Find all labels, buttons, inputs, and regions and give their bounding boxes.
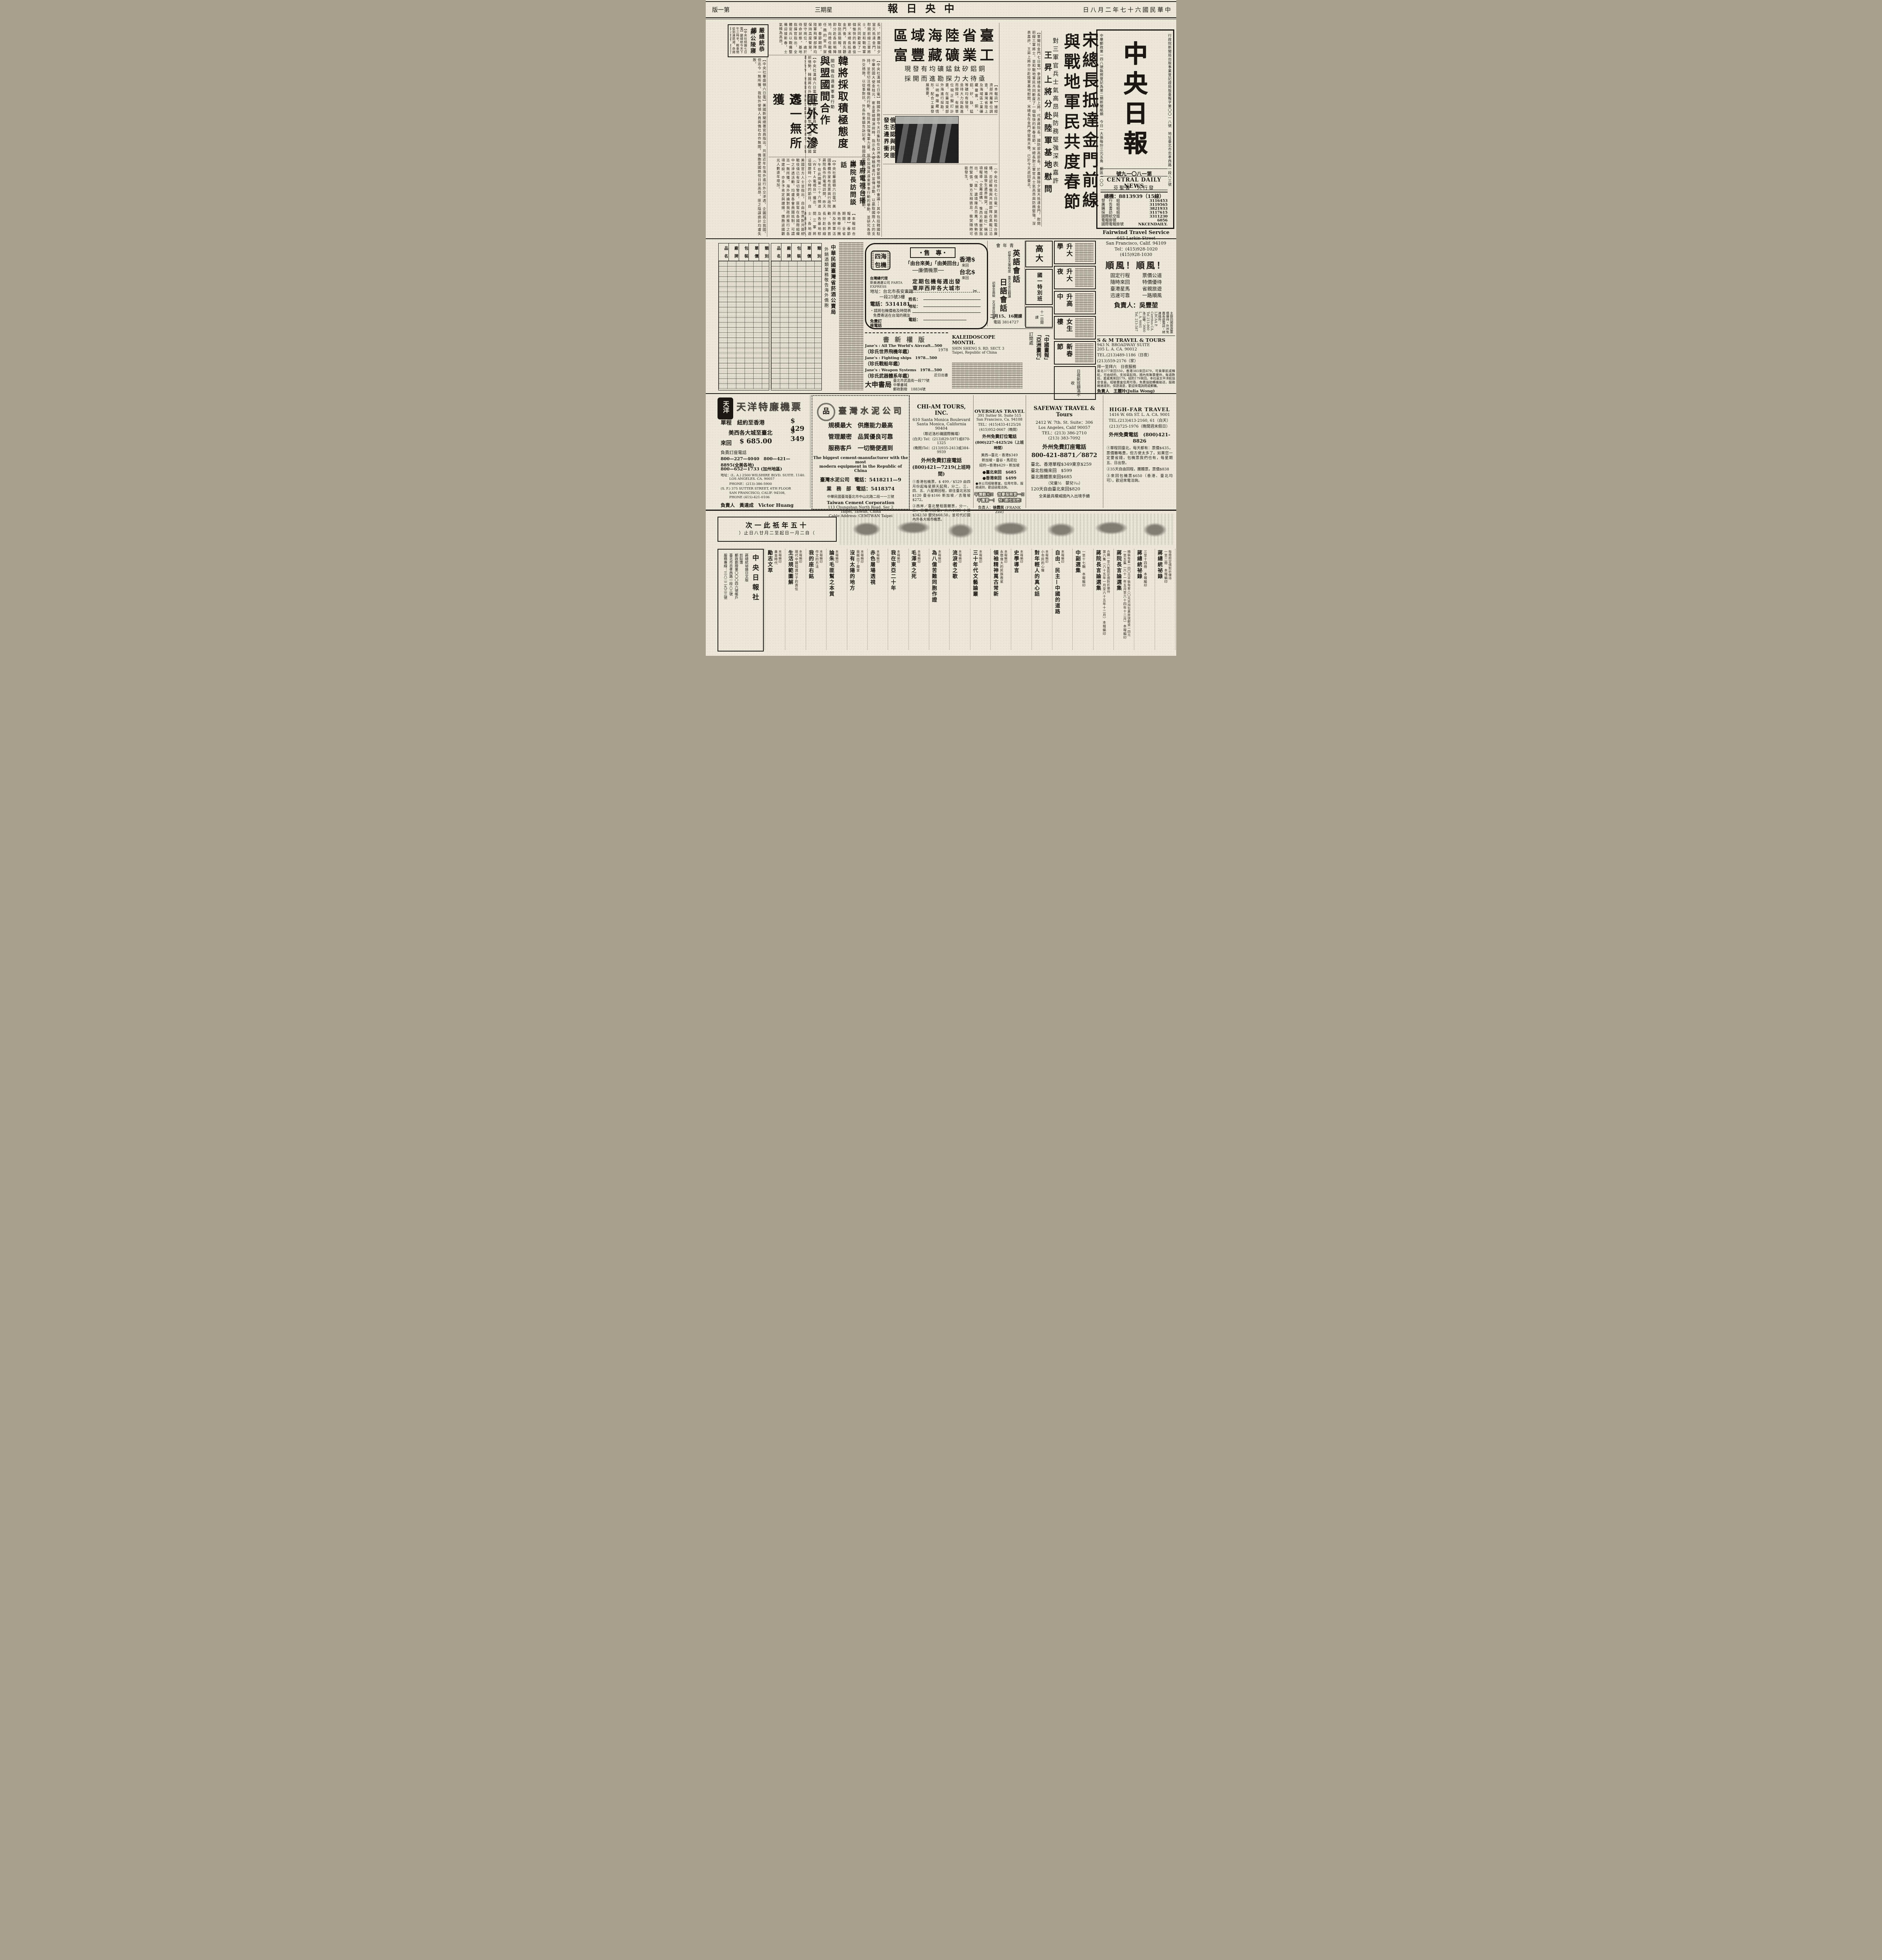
overseas-manager: 徐霖民: [993, 506, 1004, 510]
coupon-tel-field[interactable]: [923, 320, 966, 320]
phone-value: NKCENDAILY.: [1138, 223, 1168, 227]
overseas-tollfree-label: 外州免費訂位電話: [974, 433, 1025, 439]
highfar-tel-1: TEL.(213)413-2160, 61（白天）: [1104, 417, 1175, 423]
book-item: 蔣院長言論選集一至五集（六十一年五月至六十四年十二月）本報編印精裝每套一四〇元平…: [1114, 549, 1134, 650]
cement-zh-addr: 中華民國臺灣臺北市中山北路二段一一三號: [812, 494, 909, 499]
ad-separator: [1026, 395, 1026, 508]
body-seoul: 【中央社漢城七日電】韓國外務部今天召集駐在亞洲各地的使節領袖舉行會議──其中包括…: [857, 59, 880, 236]
classified-fine-print: [1075, 318, 1094, 337]
fairwind-tel-2: (415)928-1030: [1097, 252, 1175, 257]
overseas-fare-5: ●香港來回 $499: [974, 475, 1025, 481]
tianyang-phone-la: PHONE：(213)-386-5900: [729, 481, 772, 486]
classified-fine-print: [1075, 293, 1094, 312]
fairwind-features: 固定行程票價公道 隨時來回特價優待 臺港星馬省親旅遊 迅速可靠一路順風: [1097, 272, 1175, 299]
classified-text: 升大夜: [1055, 268, 1074, 287]
charter-stamp: 四海包機: [871, 250, 890, 270]
book-note: 每冊照定價對折優待: [1168, 550, 1172, 649]
misc-line-2: 「亞洲畫刊」: [1034, 332, 1042, 387]
safeway-tollfree-label: 外州免費訂座電話: [1027, 443, 1102, 451]
sale-note-line-2: ）止日八廿月二至起日一月二自（: [718, 530, 836, 536]
book-title: 毛澤東之死: [910, 550, 917, 649]
overseas-slogan-2: 平價第一! 快!請找我們!: [974, 497, 1025, 503]
book-title: 蔣總統祕錄: [1156, 550, 1163, 649]
book-subtitle: 永懷偉大的民族救星: [999, 550, 1004, 649]
book-note: 本報編印: [876, 550, 880, 649]
safeway-tel-1: TEL：(213) 386-2710: [1027, 430, 1102, 436]
overseas-manager-label: 負責人：: [978, 506, 993, 510]
bookstore-addr: 臺北市武昌街一段77號 中華書城 郵政劃撥 18834號: [893, 379, 929, 392]
misc-line-1: 「中國畫報」: [1042, 332, 1050, 387]
fairwind-addr-1: 645 Larkin Street: [1097, 236, 1175, 241]
book-title: 勵志文萃: [766, 550, 773, 649]
book-item: 為八億苦難同胞作證本報編印: [929, 549, 950, 650]
tianyang-booking-label: 負責訂座電話: [721, 449, 747, 456]
janes-item-2-en: Jane's : Fighting ships 1978…500: [865, 355, 948, 360]
overseas-manager-row: 負責人：徐霖民 (FRANK Zee): [974, 505, 1025, 514]
sm-addr-2: 205 L. A. CA. 90012: [1097, 347, 1175, 352]
photo-troop-inspection: [895, 116, 959, 163]
misc-line-3: 訂閱處: [1028, 332, 1034, 387]
coupon-addr-field[interactable]: [923, 307, 981, 307]
bookstore-addr-1: 臺北市武昌街一段77號: [893, 379, 929, 383]
chiam-tel-day: (白天) Tel：(213)829-5971或870-1325: [911, 436, 972, 445]
book-item: 赤色屠場透視本報編印: [868, 549, 888, 650]
table-header: 類 別: [759, 243, 769, 261]
cement-logo-glyph: 品: [823, 407, 830, 416]
body-misc-brief: 【本報綜合報導】春節期間，全省各地舉行團拜及勞軍活動，各界首長分赴前線及各基地慰…: [805, 212, 856, 236]
classified-text: 升大學: [1055, 243, 1074, 262]
masthead-box: 行政院新聞局出版事業登記證局版臺報字第〇〇一八號 地址臺北市忠孝西路一段八三號 …: [1096, 29, 1174, 229]
sale-note-box: 次一此祇年五十 ）止日八廿月二至起日一月二自（: [718, 517, 837, 542]
body-ussr-denial: 〔中央社台北七日電〕莫斯科電台廣播，否認蘇俄與共匪部隊在黑龍江沿線地區發生邊界衝…: [883, 166, 997, 236]
table-header: 品 名: [771, 243, 781, 261]
monopoly-bureau-ad: 中華民國臺灣省菸酒公賣局 外銷酒類業務敬告海外僑胞 品 名 廠 牌 包 裝 單 …: [718, 241, 837, 392]
stamp-text: 四海包機: [874, 252, 887, 269]
cram-school-strip: 高大 國一特別班 十一日開課: [1025, 241, 1053, 326]
book-subtitle: 作文的方法: [814, 550, 819, 649]
body-red-continued: 美國官方人士並指出，自由世界對共匪統戰伎倆已有深切警覺，匪幫在各國際組織中之滲透…: [768, 158, 805, 236]
book-item: 我在東亞二十年本報編印: [888, 549, 908, 650]
book-note: 本報編印: [819, 550, 823, 649]
book-title: 生活規範圖解: [786, 550, 794, 649]
table-header-row: 品 名 廠 牌 包 裝 單 價 類 別: [719, 243, 769, 261]
newspaper-front-page: 版一第 三期星 報日央中 日八月二年七十六國民華中 行政院新聞局出版事業登記證局…: [706, 0, 1176, 656]
section-rule: [883, 114, 997, 115]
book-title: 我的座右銘: [807, 550, 814, 649]
ymca-english-course: 英語會話: [1011, 249, 1021, 289]
book-title: 三十年代文藝論叢: [971, 550, 979, 649]
overseas-ad: OVERSEAS TRAVEL 391 Sutter St. Suite 515…: [974, 395, 1025, 509]
tianyang-addr-3: (S. F.) 375 SUTTER STREET, 6TH FLOOR: [721, 487, 791, 491]
header-rule-1: [706, 17, 1176, 18]
feature: 省親旅遊: [1136, 285, 1168, 292]
ad-separator: [1103, 395, 1103, 508]
overseas-fare-4: ●臺北來回 $685: [974, 469, 1025, 475]
coupon-name-field[interactable]: [923, 299, 981, 300]
book-note: 本報編印: [835, 550, 839, 649]
price-table-liquor: 品 名 廠 牌 包 裝 單 價 類 別: [718, 243, 769, 390]
sm-tel-2: (213)559-2176（家）: [1097, 358, 1175, 363]
coupon-cut-line: [905, 292, 980, 292]
cement-tel-2: 業 務 部 電話：5418374: [812, 485, 909, 492]
classified-box: 女生樓: [1054, 316, 1096, 339]
scissors-icon: ✂: [973, 288, 977, 294]
book-item: 三十年代文藝論叢本報編印: [970, 549, 991, 650]
subhead-minerals-2: 採開而進勘探力大待亟: [899, 73, 993, 83]
safeway-fare-4: （兒童½ 嬰兒⅒）: [1027, 480, 1102, 486]
header-rule-2: [706, 19, 1176, 19]
overseas-name: OVERSEAS TRAVEL: [974, 408, 1025, 414]
table-body-fine-print: [719, 261, 769, 389]
subhead-song: 王昇上將分赴陸軍基地慰問: [1042, 51, 1054, 208]
charter-label: ・售 專・: [910, 247, 956, 258]
janes-store-row: 大申書局 臺北市武昌街一段77號 中華書城 郵政劃撥 18834號: [865, 379, 948, 392]
body-minerals: 【本報訊】據經濟部所屬單位調查，臺灣省陸上及海域區工業礦藏豐富，銅、鋁、矽、鈦、…: [893, 83, 998, 114]
column-rule: [767, 57, 767, 237]
book-title: 我在東亞二十年: [889, 550, 896, 649]
book-item: 領袖精神萬古常新永懷偉大的民族救星本報編印: [991, 549, 1011, 650]
section-rule: [768, 55, 881, 55]
fairwind-agents-note: 主辦回國旅遊票價優待・外州免費長途電話・總連絡所：LBCAA P. Cerrit…: [1099, 312, 1174, 334]
chiam-tollfree: (800)421—7219(上班時間): [911, 464, 972, 477]
headline-minerals-1: 區域海陸省臺: [893, 24, 997, 45]
book-subtitle: 一至二冊 本報編印: [1163, 550, 1168, 649]
phone-list: 發 行 組3116453 廣 告 組3119565 購 書 組3821933 採…: [1101, 199, 1168, 227]
hotline-label-2: 座電話: [870, 322, 882, 328]
safeway-tollfree: 800-421-8871／8872: [1027, 451, 1102, 459]
book-subtitle: 第六集（六十五年一月至六十五年十二月）本報編印: [1102, 550, 1106, 649]
book-note: 本報編印: [1045, 550, 1049, 649]
fare-taipei: 台北$: [959, 268, 975, 276]
feature: 特價優待: [1136, 279, 1168, 285]
chiam-name: CHI-AM TOURS, INC.: [911, 404, 972, 416]
safeway-fare-5: 120天自由臺北來回$820: [1027, 486, 1102, 492]
chiam-addr-1: 610 Santa Monica Boulevard: [911, 418, 972, 422]
book-title: 自由、民主—中國的道路: [1053, 550, 1061, 649]
overseas-addr-1: 391 Sutter St. Suite 515: [974, 414, 1025, 418]
book-title: 蔣總統祕錄: [1135, 550, 1143, 649]
chiam-tollfree-label: 外州免費訂座電話: [911, 456, 972, 464]
book-note: 本報編印: [896, 550, 901, 649]
cram-box-3: 十一日開課: [1025, 307, 1053, 328]
cement-slogan-3: 服務客戶 一切簡便週到: [812, 444, 909, 452]
body-song-continued: 長，於農曆除夕當天抵達金門，慰問前線三軍將士，並和戰地軍民共同歡度了一個愉快的新…: [768, 23, 881, 54]
yen-story-box: 嚴總統恭謁 蔣公陵寢 【中央社桃園七日電】嚴總統今天下午三時半，輕車簡從到達慈湖…: [728, 24, 768, 57]
safeway-fare-6: 全美最具權威國內入出境手續: [1027, 493, 1102, 499]
book-item: 生活規範圖解現代中國知識分子的責任本報編印: [785, 549, 806, 650]
table-header: 品 名: [719, 243, 728, 261]
chiam-tel-night: (晚間)Tel：(213)935-2413或384-9939: [911, 445, 972, 454]
ymca-phone: 電話 3814727: [988, 319, 1024, 325]
bookstore-postal: 郵政劃撥 18834號: [893, 388, 926, 392]
book-note: 合購一至六集照定價對折優待: [1106, 550, 1111, 649]
book-title: 史學導言: [1012, 550, 1019, 649]
book-item: 對年輕人的真心話小市民的心聲本報編印: [1032, 549, 1052, 650]
tianyang-tollfree-2: 800—652—1733 (加州地區): [721, 466, 782, 472]
charter-phone: 電話：5314181: [870, 300, 910, 307]
overseas-fare-1: 美西→臺北・香港$349: [974, 452, 1025, 457]
safeway-addr-1: 2412 W. 7th. St. Suite：306: [1027, 419, 1102, 425]
chiam-note: （鄰近洛杉磯國際機場）: [911, 431, 972, 436]
feature: 臺港星馬: [1104, 285, 1136, 292]
monopoly-title-2: 外銷酒類業務敬告海外僑胞: [823, 247, 829, 388]
cement-en-name: Taiwan Cement Corporation: [812, 500, 909, 505]
classified-text: 升高中: [1055, 293, 1074, 312]
overseas-note: ●本公司經驗豐富，信用可靠，服務週到，歡迎函電洽詢。: [974, 482, 1025, 490]
price-table-wine: 品 名 廠 牌 包 裝 單 價 類 別: [771, 243, 822, 390]
sm-travel-ad: S & M TRAVEL & TOURS 943 N. BROADWAY SUI…: [1097, 336, 1175, 392]
fine-print-column: [839, 242, 863, 390]
misc-en-2: MONTH.: [952, 340, 1011, 345]
book-sale-banner: 次一此祇年五十 ）止日八廿月二至起日一月二自（: [718, 514, 1175, 545]
charter-line1: 「由台來美」「由美回台」: [905, 259, 968, 267]
tianyang-manager: 負責人 黃達成 Victor Huang: [721, 502, 794, 508]
column-rule: [881, 23, 882, 237]
section-rule: [768, 157, 881, 157]
tianyang-title: 天洋特廉機票: [736, 399, 808, 413]
banner-calligraphy-smudge: [840, 514, 1175, 545]
sm-addr-1: 943 N. BROADWAY SUITE: [1097, 343, 1175, 347]
janes-item-1-zh-row: （珍氏世界飛機年鑑） 1978: [865, 348, 948, 355]
column-rule: [805, 55, 806, 237]
tianyang-addr-4: SAN FRANCISCO, CALIF. 94108,: [729, 491, 785, 495]
highfar-tollfree: 外州免費電話 (800)421-8826: [1104, 430, 1175, 444]
book-item: 自由、民主—中國的道路本報編印: [1052, 549, 1073, 650]
chiam-addr-2: Santa Monica, California 90404: [911, 422, 972, 431]
ymca-start-date: 二月15、16開課: [988, 313, 1024, 319]
press-line-5: 服務專線：三八二二九三三號: [723, 554, 728, 647]
sm-tel-1: TEL.(213)489-1186（日夜）: [1097, 352, 1175, 358]
bookstore-addr-2: 中華書城: [893, 383, 907, 387]
cram-text: 國一特別班: [1035, 271, 1043, 303]
overseas-slogan-1: 平價觀光!! 信譽服務第一!!: [974, 491, 1025, 497]
body-song: 【軍聞社金門七日電】參謀總長宋長志上將，代表蔣院長、國防部高部長，於農曆除夕當天…: [1001, 31, 1041, 226]
book-note: 精裝每套一四〇元平裝每套八〇元另加包裹掛號郵資一四元: [1127, 550, 1131, 649]
body-red: 【中央社華盛頓六日電】美國新聞總署官員指出，共匪近年在海外進行外交滲透，企圖孤立…: [728, 58, 766, 236]
overseas-tollfree: (800)227-4425/26（上班時間）: [974, 439, 1025, 450]
safeway-fare-3: 臺北團體票來回$685: [1027, 474, 1102, 480]
misc-english-block: KALEIDOSCOPE MONTH. SHIN SHENG S. RD. SE…: [952, 334, 1011, 355]
classified-fine-print: [1075, 243, 1094, 262]
cement-en-1: The biggest cement-manufacturer with the…: [812, 456, 909, 465]
janes-item-2-zh: （珍氏戰船年鑑）: [865, 360, 948, 367]
tianyang-addr-2: LOS ANGELES. CA. 90057: [729, 477, 775, 481]
weekday-label: 三期星: [815, 5, 832, 14]
table-header: 廠 牌: [728, 243, 739, 261]
tianyang-phone-sf: PHONE (415)-421-0106: [729, 495, 770, 499]
book-note: 本報編印: [958, 550, 962, 649]
misc-en-4: Taipei, Republic of China: [952, 351, 1011, 355]
highfar-tel-2: (213)725-1976（晚間週末假日）: [1104, 423, 1175, 429]
fare-hongkong: 香港$: [959, 255, 975, 263]
book-item: 勵志文萃黃金時代本報編印: [765, 549, 785, 650]
body-tv: 【中央社華盛頓六日電】美國專欄作家布克萊與行政院蔣院長作的電視訪問，昨天下午在此…: [806, 158, 836, 209]
book-item: 沒有太陽的地方我衝出了魔掌本報編印: [847, 549, 868, 650]
publisher-line: 芬聖曹 人行發: [1101, 184, 1168, 192]
safeway-addr-2: Los Angeles, Calif 90057: [1027, 425, 1102, 430]
sm-body: 臺北377來回550，香港383來回479，可乘華航或韓航，可由紐約、支加哥起飛…: [1097, 369, 1175, 388]
charter-line2: ──廉價機票──: [912, 266, 967, 274]
ymca-org: 會年青: [988, 242, 1025, 249]
headline-minerals-2: 富豐藏礦業工: [893, 44, 997, 64]
classified-text: 新春節: [1055, 343, 1074, 362]
book-note: 本報編印: [937, 550, 942, 649]
edition-label: 版一第: [712, 5, 730, 14]
book-title: 蔣院長言論選集: [1115, 550, 1122, 649]
headline-tv-2: 蔣院長訪問談話: [838, 162, 857, 208]
cram-box-1: 高大: [1025, 241, 1053, 267]
highfar-addr: 1416 W. 6th ST. L. A. CA. 9001: [1104, 413, 1175, 417]
book-note: 本報編印: [860, 550, 865, 649]
feature: 票價公道: [1136, 272, 1168, 279]
coupon-addr-field-2[interactable]: [912, 312, 981, 313]
highfar-item-3: ③來回包機票$650（香港、臺北均可），歡迎來電洽詢。: [1104, 474, 1175, 484]
book-subtitle: 三至十四冊 本報編印: [1143, 550, 1147, 649]
misc-ads-box: 「中國畫報」 「亞洲畫刊」 訂閱處 KALEIDOSCOPE MONTH. SH…: [949, 328, 1053, 392]
book-title: 流淚者之歌: [950, 550, 958, 649]
tianyang-logo: 天洋: [718, 397, 733, 419]
book-note: 本報編印: [1019, 550, 1024, 649]
phone-row: 國際電報掛號NKCENDAILY.: [1101, 223, 1168, 227]
cement-en-2: modern equipment in the Republic of Chin…: [812, 465, 909, 473]
feature: 一路順風: [1136, 292, 1168, 299]
safeway-fare-2: 臺北包機來回 $599: [1027, 467, 1102, 474]
safeway-ad: SAFEWAY TRAVEL & Tours 2412 W. 7th. St. …: [1027, 395, 1102, 509]
cement-tel-1: 臺灣水泥公司 電話：5418211—9: [812, 475, 909, 483]
classified-fine-print: [1075, 343, 1094, 362]
charter-note-2: 免費寄送在台灣的親友: [873, 312, 910, 318]
book-note: 本報編印: [979, 550, 983, 649]
classified-fine-print: [1075, 268, 1094, 287]
feature: 迅速可靠: [1104, 292, 1136, 299]
headline-yen-2: 蔣公陵寢: [749, 29, 757, 54]
book-subtitle: 一至五集（六十一年五月至六十四年十二月）本報編印: [1122, 550, 1127, 649]
sm-hours: 拜一至拜六 日夜服務: [1097, 363, 1175, 369]
misc-fine-print: [952, 363, 1023, 388]
tianyang-fare-1: 單程 紐約至香港: [721, 419, 765, 426]
headline-red-2: 迄一無所獲: [768, 93, 803, 157]
classifieds-column: 升大學 升大夜 升高中 女生樓 新春節 日夜新班額滿不收: [1054, 241, 1096, 392]
headline-korea-1: 韓將採取積極態度: [835, 56, 850, 156]
press-service-box: 中央日報社 蔣總統祕錄日文版 剪貼簿 郵政劃撥第〇〇〇四六號帳戶 臺北市忠孝西路…: [718, 549, 764, 652]
book-title: 蔣院長言論選集: [1094, 550, 1102, 649]
sm-name: S & M TRAVEL & TOURS: [1097, 337, 1175, 343]
book-item: 中副選集一至十七輯 本報編印合購一至十七輯照定價對折優待 精裝每套四二五元平裝每…: [1073, 549, 1093, 650]
classified-box: 升高中: [1054, 291, 1096, 314]
tianyang-logo-text: 天洋: [721, 401, 730, 413]
book-note: 本報編印: [798, 550, 803, 649]
janes-item-3-zh: （珍氏武器體系年鑑）: [865, 372, 912, 379]
highfar-name: HIGH-FAR TRAVEL: [1104, 407, 1175, 413]
table-header: 類 別: [811, 243, 821, 261]
janes-item-3-zh-row: （珍氏武器體系年鑑） 近日出書: [865, 372, 948, 379]
book-subtitle: 現代中國知識分子的責任: [794, 550, 798, 649]
press-line-4: 臺北市忠孝西路一段八三號: [728, 554, 733, 647]
column-rule: [1041, 31, 1042, 227]
safeway-name: SAFEWAY TRAVEL & Tours: [1027, 405, 1102, 418]
bookstore-name: 大申書局: [865, 379, 892, 389]
charter-address-2: 一段25號3樓: [879, 294, 905, 300]
overseas-fare-2: 新加坡・曼谷・馬尼拉: [974, 457, 1025, 463]
table-header: 單 價: [748, 243, 759, 261]
janes-title: 書新權版: [865, 334, 948, 344]
janes-item-3-en: Jane's : Weapon Systems 1978…500: [865, 367, 948, 372]
sale-note-line-1: 次一此祇年五十: [718, 520, 836, 530]
coupon-name-label: 姓名：: [908, 296, 920, 302]
charter-ticket-ad: 四海包機 ・售 專・ 「由台來美」「由美回台」 ──廉價機票── 香港$ 來回 …: [865, 243, 988, 329]
book-title: 中副選集: [1074, 550, 1081, 649]
section-rule: [883, 164, 997, 164]
book-subtitle: 我衝出了魔掌: [856, 550, 860, 649]
agent-name: 新美通運公司 FARTA EXPRESS: [870, 280, 909, 289]
overseas-tel-2: (415)952-0667（晚間）: [974, 427, 1025, 432]
page-title: 報日央中: [878, 1, 972, 15]
book-item: 蔣院長言論選集第六集（六十五年一月至六十五年十二月）本報編印合購一至六集照定價對…: [1094, 549, 1114, 650]
chiam-ad: CHI-AM TOURS, INC. 610 Santa Monica Boul…: [911, 395, 972, 509]
safeway-fare-1: 臺北、香港單程$349東京$259: [1027, 461, 1102, 467]
fairwind-tel-1: Tel：(415)928-1020: [1097, 246, 1175, 252]
misc-en-1: KALEIDOSCOPE: [952, 334, 1011, 340]
headline-song-2: 與戰地軍民共度春節: [1059, 33, 1083, 220]
book-note: 本報編印: [1004, 550, 1008, 649]
tianyang-fare-3: 來回: [721, 439, 732, 447]
tianyang-price-2: $ 349: [790, 427, 808, 443]
highfar-ad: HIGH-FAR TRAVEL 1416 W. 6th ST. L. A. CA…: [1104, 395, 1175, 509]
halftone-overlay: [896, 116, 958, 163]
press-line-1: 蔣總統祕錄日文版: [744, 554, 749, 647]
classified-box: 升大學: [1054, 241, 1096, 264]
cement-title: 臺灣水泥公司: [837, 405, 906, 416]
book-title: 對年輕人的真心話: [1033, 550, 1040, 649]
table-header: 包 裝: [791, 243, 801, 261]
feature: 隨時來回: [1104, 279, 1136, 285]
safeway-tel-2: (213) 383-7092: [1027, 436, 1102, 441]
book-item: 毛澤東之死本報編印: [909, 549, 929, 650]
ymca-japanese-course: 日語會話: [998, 278, 1008, 318]
overseas-addr-2: San Francisco, Ca. 94108: [974, 418, 1025, 422]
press-line-2: 剪貼簿: [738, 554, 743, 647]
classified-box: 升大夜: [1054, 266, 1096, 289]
janes-item-1-year: 1978: [938, 348, 948, 355]
classified-box: 新春節: [1054, 341, 1096, 365]
cement-logo: 品: [817, 403, 835, 421]
book-title: 赤色屠場透視: [868, 550, 876, 649]
ymca-language-ad: 會年青 英語會話 初學至大專程度 重文法會話翻譯 日語會話 初學至高級 文法會話…: [987, 241, 1025, 326]
chiam-item-1: ①香港包機票，$ 499／$529 由四月份起每星期天起飛，分二、三、四、五、六…: [911, 480, 972, 503]
fairwind-name: Fairwind Travel Service: [1097, 230, 1175, 236]
subhead-minerals-1: 現發有均礦錳鈦矽鋁銅: [899, 64, 993, 73]
bottom-ads-top-rule: [706, 393, 1176, 394]
cement-en-addr-1: 113 Chungshan North Road. Sec 2: [812, 505, 909, 510]
tianyang-price-3: $ 685.00: [739, 437, 772, 445]
book-item: 論朱毛匪幫之本質本報編印: [827, 549, 847, 650]
tianyang-fare-2: 美西各大城至臺北: [728, 429, 772, 437]
highfar-item-1: ①單程回臺北，每天都有：票價$435，票價雖略貴，但方便太多了。如果您一定要省錢…: [1104, 446, 1175, 466]
fairwind-manager: 負責人：吳豐堃: [1097, 300, 1175, 309]
fairwind-addr-2: San Francisco, Calif. 94109: [1097, 241, 1175, 246]
body-yen: 【中央社桃園七日電】嚴總統今天下午三時半，輕車簡從到達慈湖，恭謁 蔣公陵寢，獻花…: [730, 27, 747, 54]
fairwind-slogan: 順風！順風！: [1097, 259, 1175, 271]
overseas-tel-1: TEL：(415)433-4125/26: [974, 422, 1025, 427]
date-line: 日八月二年七十六國民華中: [1027, 5, 1172, 14]
janes-item-1-zh: （珍氏世界飛機年鑑）: [865, 348, 912, 355]
book-title: 為八億苦難同胞作證: [930, 550, 937, 649]
cement-slogan-1: 規模最大 供應能力最高: [812, 421, 909, 429]
ad-separator: [973, 395, 974, 508]
book-item: 史學導言本報編印: [1011, 549, 1032, 650]
monopoly-title-1: 中華民國臺灣省菸酒公賣局: [829, 245, 836, 390]
headline-ussr-2: 發生邊界衝突: [882, 117, 890, 161]
